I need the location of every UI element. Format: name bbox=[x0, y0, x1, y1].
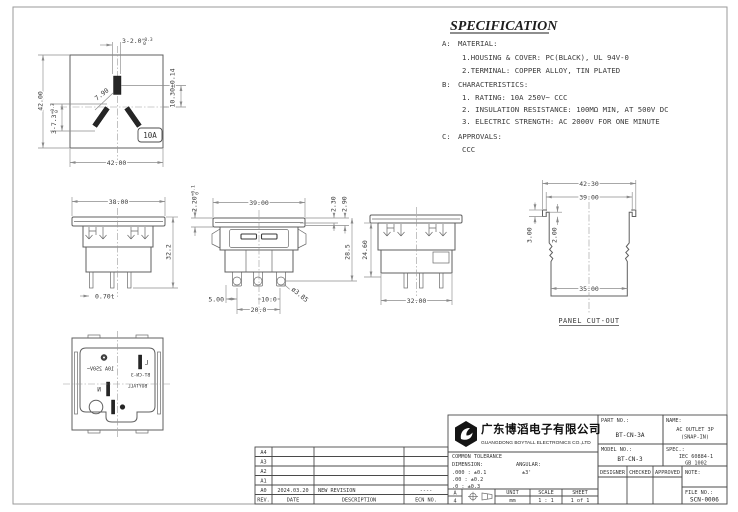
angular-tolerance: ±3' bbox=[522, 470, 531, 476]
dimension-label: DIMENSION: bbox=[452, 462, 483, 468]
designer-label: DESIGNER bbox=[600, 470, 626, 476]
view-front-face: 3-2.0+0.30 10.30±0.14 42.00 3-7.3+0.30 7… bbox=[37, 37, 187, 167]
company-logo bbox=[455, 421, 477, 447]
dim-overall-width: 42.00 bbox=[107, 159, 127, 167]
part-no-label: PART NO.: bbox=[601, 418, 629, 424]
rev-row-label: A4 bbox=[260, 450, 266, 456]
spec-b-item1: 1. RATING: 10A 250V~ CCC bbox=[462, 93, 567, 102]
rev-description: NEW REVISION bbox=[318, 488, 355, 494]
dim-overall-height: 42.00 bbox=[37, 91, 45, 111]
earth-slot bbox=[114, 76, 122, 95]
dim-step-b: 2.00 bbox=[551, 227, 559, 243]
dim-width-32: 32.00 bbox=[407, 297, 427, 305]
dim-cutout-outer: 42.30 bbox=[579, 180, 599, 188]
rev-ecn: ---- bbox=[420, 488, 433, 494]
scale-value: 1 : 1 bbox=[538, 498, 554, 504]
dim-slot-length: 3-7.3+0.30 bbox=[50, 103, 60, 134]
dim-pitch-c: 20.0 bbox=[251, 306, 267, 314]
dim-pitch-b: 10.0 bbox=[261, 296, 277, 304]
rev-date: 2024.03.20 bbox=[277, 488, 308, 494]
name-value-2: (SNAP-IN) bbox=[681, 435, 709, 441]
dim-height-24-6: 24.60 bbox=[361, 240, 369, 260]
sheet-value: 1 of 1 bbox=[571, 498, 590, 504]
spec-value-2: GB 1002 bbox=[685, 461, 707, 467]
specification-block: SPECIFICATION A: MATERIAL: 1.HOUSING & C… bbox=[442, 19, 668, 154]
unit-label: UNIT bbox=[506, 490, 519, 496]
model-no-value: BT-CN-3 bbox=[617, 456, 643, 463]
rev-footer-rev: REV. bbox=[257, 498, 270, 504]
angular-label: ANGULAR: bbox=[516, 462, 541, 468]
spec-a-item1: 1.HOUSING & COVER: PC(BLACK), UL 94V-0 bbox=[462, 53, 629, 62]
outlet-slot-left bbox=[241, 234, 257, 239]
dim-step1: 2.30 bbox=[330, 196, 338, 212]
view-side-32: 24.60 32.00 bbox=[361, 207, 462, 305]
rear-line-label: L bbox=[144, 360, 148, 367]
rev-row-label: A1 bbox=[260, 479, 266, 485]
scale-label: SCALE bbox=[538, 490, 554, 496]
dim-slot-width: 3-2.0+0.30 bbox=[122, 37, 153, 47]
rev-footer-date: DATE bbox=[287, 498, 300, 504]
view-side-38: 38.00 32.2 0.70t bbox=[72, 197, 178, 301]
dim-pitch-a: 5.00 bbox=[208, 296, 224, 304]
dim-height-28-5: 28.5 bbox=[344, 244, 352, 260]
projection-symbol-icon bbox=[468, 492, 492, 501]
sheet-label: SHEET bbox=[572, 490, 588, 496]
spec-value-1: IEC 60884-1 bbox=[679, 454, 713, 460]
dim-earth-offset: 10.30±0.14 bbox=[169, 68, 177, 107]
rev-footer-description: DESCRIPTION bbox=[342, 498, 376, 504]
rear-brand-text: BOYTALL bbox=[128, 384, 148, 390]
rev-row-label: A3 bbox=[260, 460, 266, 466]
line-slot bbox=[125, 107, 142, 128]
company-name-en: GUANGDONG BOYTALL ELECTRONICS CO.,LTD bbox=[481, 440, 591, 446]
spec-c-item1: CCC bbox=[462, 145, 475, 154]
spec-label: SPEC.: bbox=[666, 447, 685, 453]
rating-badge: 10A bbox=[143, 131, 157, 140]
approved-label: APPROVED bbox=[655, 470, 680, 476]
dim-angled-slot-width: 7.90 bbox=[93, 86, 110, 102]
view-front-39: 2.20+0.10 39.00 2.30 2.90 bbox=[190, 185, 357, 314]
spec-c-label: C: bbox=[442, 132, 451, 141]
view-rear: 10A 250V~ L N BT-CN-3 BOYTALL bbox=[63, 331, 172, 437]
rear-rating-text: 10A 250V~ bbox=[87, 367, 114, 373]
revision-table: A4 A3 A2 A1 A0 2024.03.20 NEW REVISION -… bbox=[255, 447, 448, 504]
dim-hole-dia: ø3.85 bbox=[290, 285, 310, 304]
dim-terminal-thickness: 0.70t bbox=[95, 293, 115, 301]
spec-b-label: B: bbox=[442, 80, 451, 89]
file-no-label: FILE NO.: bbox=[685, 490, 713, 496]
outlet-slot-right bbox=[262, 234, 278, 239]
panel-cutout-caption: PANEL CUT-OUT bbox=[558, 317, 620, 325]
rear-neutral-label: N bbox=[97, 387, 101, 394]
company-name-cn: 广东博滔电子有限公司 bbox=[481, 422, 601, 436]
dim-cutout-inner: 39.00 bbox=[579, 194, 599, 202]
spec-c-heading: APPROVALS: bbox=[458, 132, 502, 141]
tolerance-row-1: .000 : ±0.1 bbox=[452, 470, 486, 476]
rev-row-label: A0 bbox=[260, 488, 266, 494]
view-panel-cutout: 42.30 39.00 3.00 2.00 35.00 PANEL CUT-OU… bbox=[526, 180, 636, 326]
name-value-1: AC OUTLET 3P bbox=[676, 427, 713, 433]
dim-cutout-bottom: 35.00 bbox=[579, 285, 599, 293]
dim-step2: 2.90 bbox=[341, 196, 349, 212]
name-label: NAME: bbox=[666, 418, 682, 424]
spec-b-item3: 3. ELECTRIC STRENGTH: AC 2000V FOR ONE M… bbox=[462, 117, 660, 126]
tolerance-row-3: .0 : ±0.3 bbox=[452, 484, 480, 490]
file-no-value: SCN-0006 bbox=[690, 497, 719, 504]
rev-row-label: A2 bbox=[260, 469, 266, 475]
note-label: NOTE: bbox=[685, 470, 701, 476]
spec-b-item2: 2. INSULATION RESISTANCE: 100MΩ MIN, AT … bbox=[462, 105, 668, 114]
rev-footer-ecn: ECN NO. bbox=[415, 498, 437, 504]
engineering-drawing-page: 3-2.0+0.30 10.30±0.14 42.00 3-7.3+0.30 7… bbox=[0, 0, 738, 512]
paper-size-4: 4 bbox=[453, 499, 456, 505]
spec-b-heading: CHARACTERISTICS: bbox=[458, 80, 528, 89]
dim-cover-height: 2.20+0.10 bbox=[190, 185, 200, 212]
spec-a-heading: MATERIAL: bbox=[458, 39, 498, 48]
rear-model-text: BT-CN-3 bbox=[131, 373, 151, 379]
drawing-canvas: 3-2.0+0.30 10.30±0.14 42.00 3-7.3+0.30 7… bbox=[0, 0, 738, 512]
tolerance-row-2: .00 : ±0.2 bbox=[452, 477, 483, 483]
dim-step-a: 3.00 bbox=[526, 227, 534, 243]
title-block: 广东博滔电子有限公司 GUANGDONG BOYTALL ELECTRONICS… bbox=[448, 415, 727, 505]
rear-line-slot bbox=[139, 355, 142, 369]
spec-a-item2: 2.TERMINAL: COPPER ALLOY, TIN PLATED bbox=[462, 66, 620, 75]
dim-height-32-2: 32.2 bbox=[165, 244, 173, 260]
dim-width-38: 38.00 bbox=[109, 198, 129, 206]
tolerance-title: COMMON TOLERANCE bbox=[452, 454, 502, 460]
spec-title: SPECIFICATION bbox=[450, 19, 558, 34]
dim-width-39: 39.00 bbox=[249, 199, 269, 207]
part-no-value: BT-CN-3A bbox=[616, 432, 645, 439]
model-no-label: MODEL NO.: bbox=[601, 447, 632, 453]
checked-label: CHECKED bbox=[629, 470, 651, 476]
unit-value: mm bbox=[509, 498, 515, 504]
spec-a-label: A: bbox=[442, 39, 451, 48]
